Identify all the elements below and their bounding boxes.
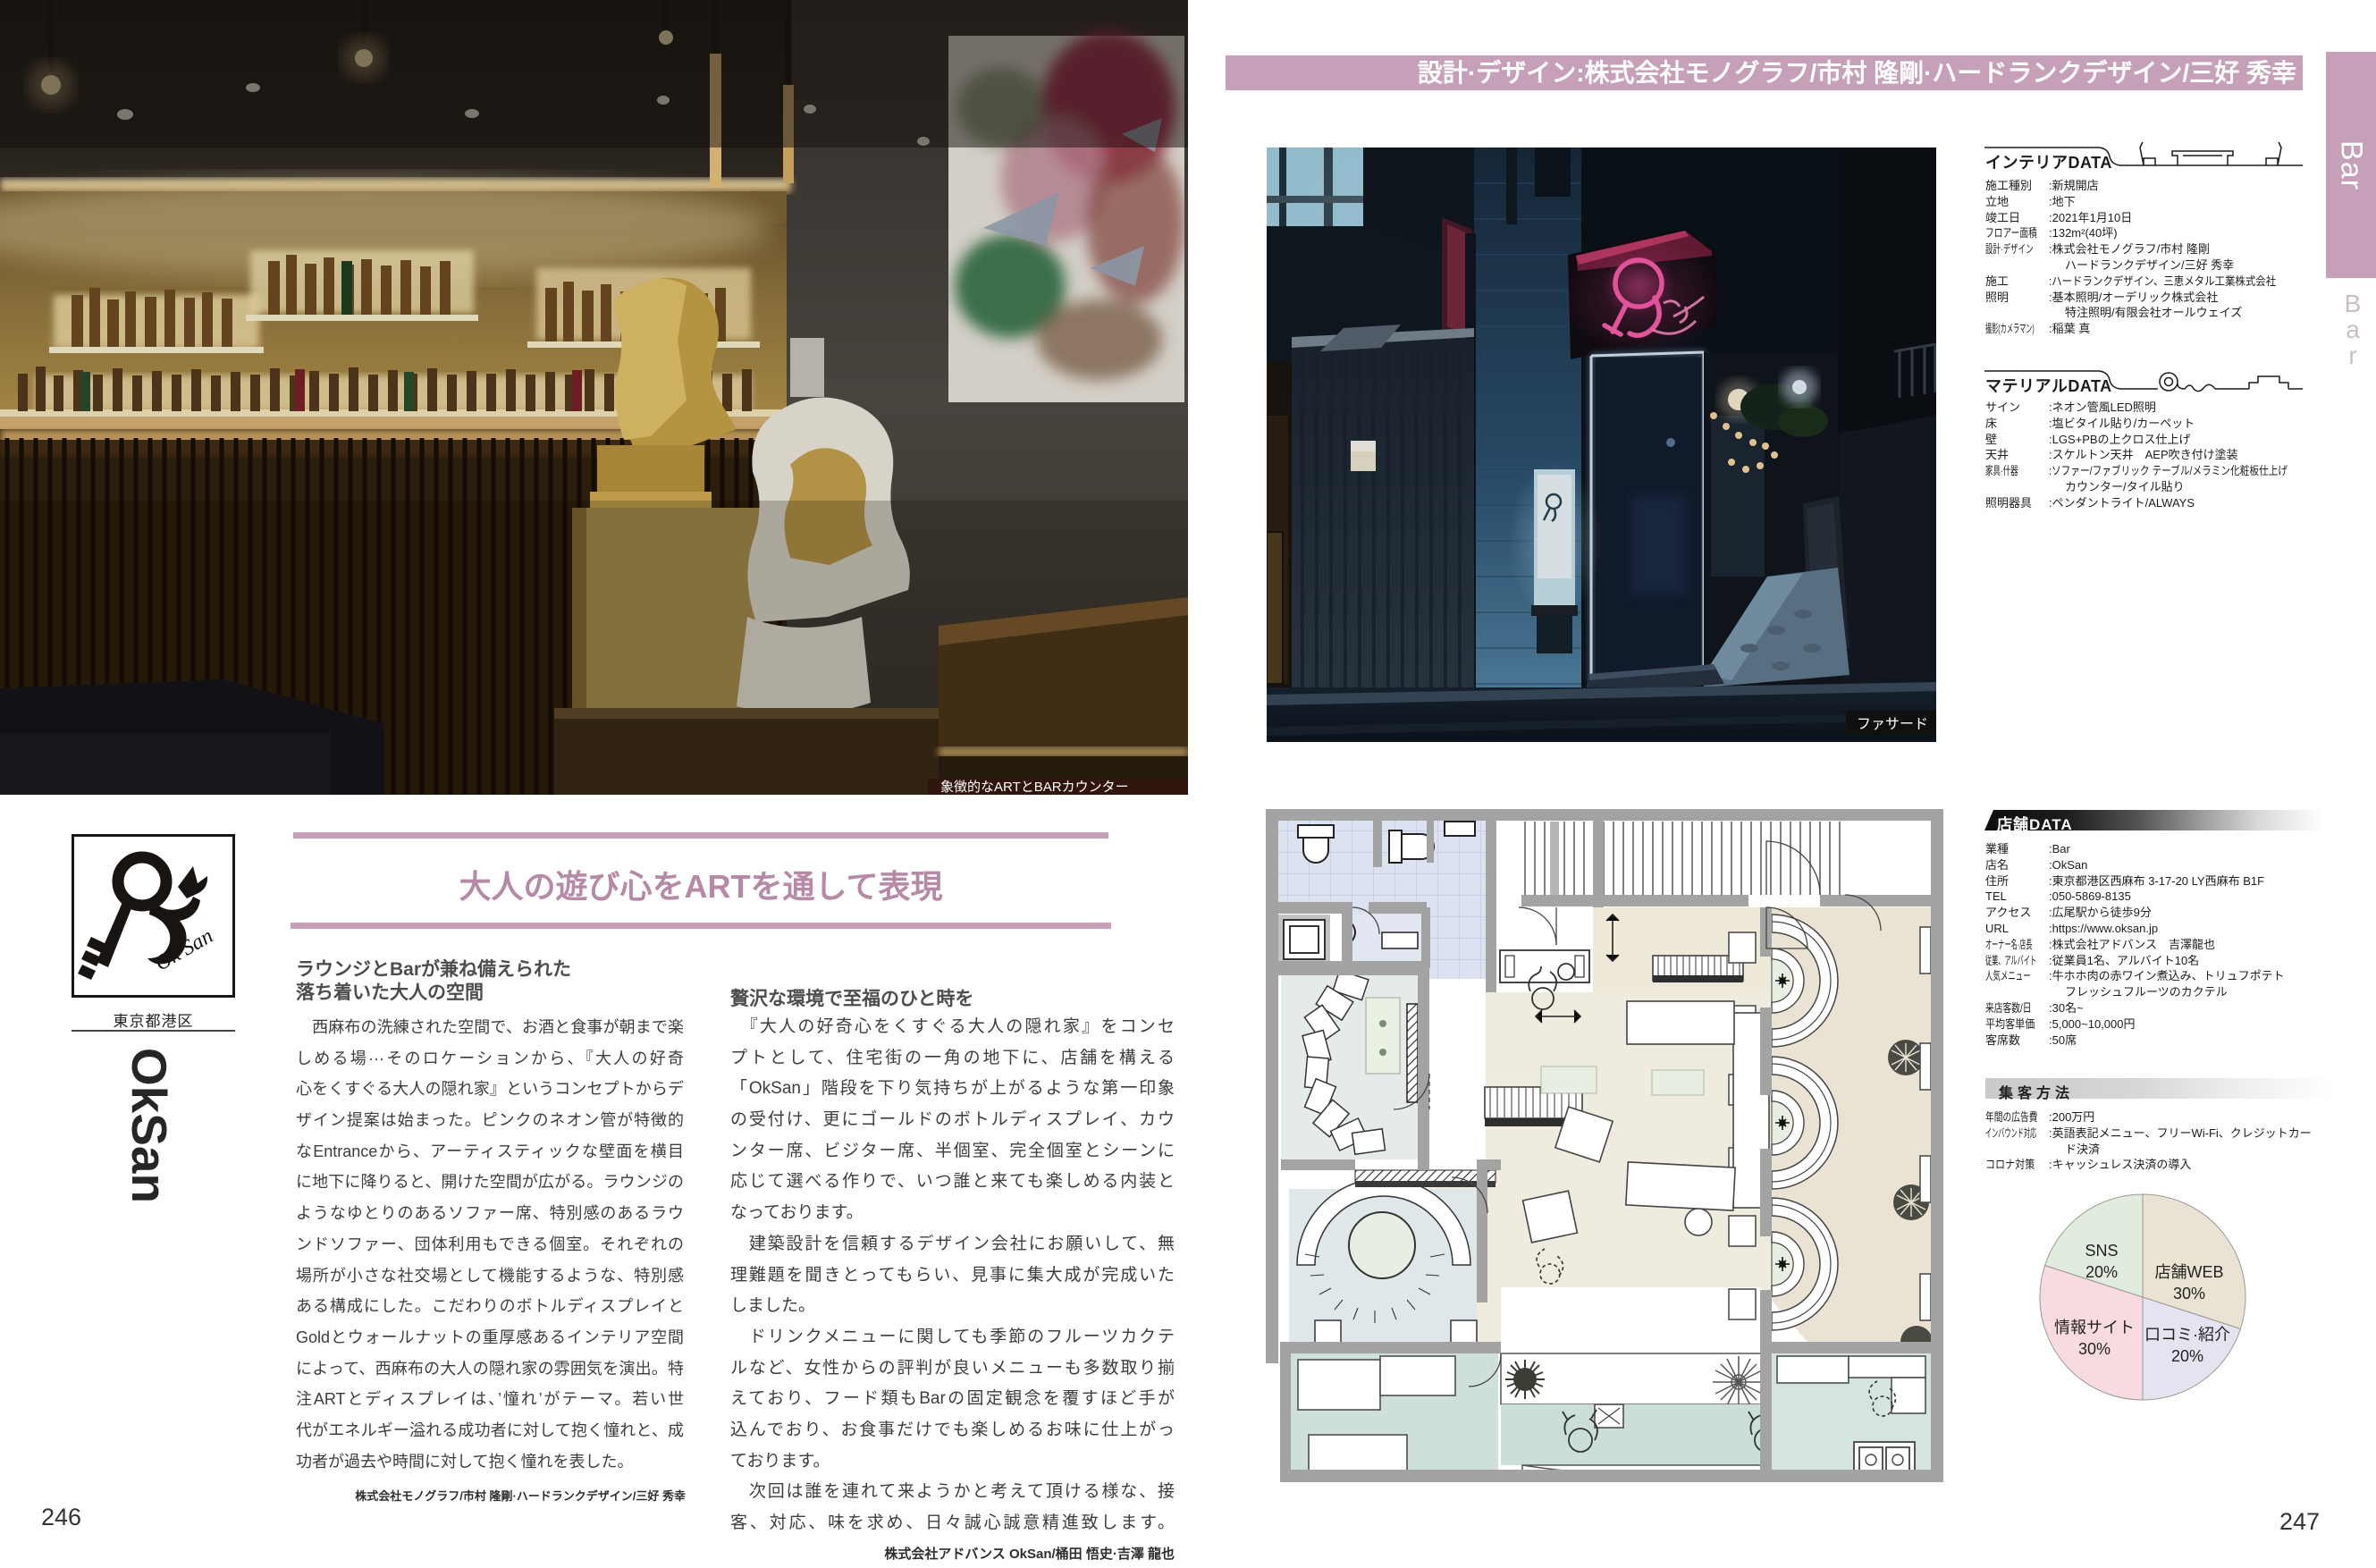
svg-text:情報サイト: 情報サイト bbox=[2054, 1319, 2135, 1336]
svg-text:口コミ·紹介: 口コミ·紹介 bbox=[2144, 1326, 2230, 1344]
svg-text:象徴的なARTとBARカウンター: 象徴的なARTとBARカウンター bbox=[940, 780, 1129, 795]
svg-text:20%: 20% bbox=[2085, 1263, 2118, 1281]
svg-text:20%: 20% bbox=[2171, 1347, 2203, 1365]
svg-text:店舗WEB: 店舗WEB bbox=[2154, 1263, 2223, 1281]
svg-text:30%: 30% bbox=[2078, 1340, 2111, 1358]
svg-text:SNS: SNS bbox=[2085, 1242, 2118, 1260]
svg-text:30%: 30% bbox=[2173, 1285, 2205, 1302]
svg-text:ファサード: ファサード bbox=[1857, 717, 1928, 732]
